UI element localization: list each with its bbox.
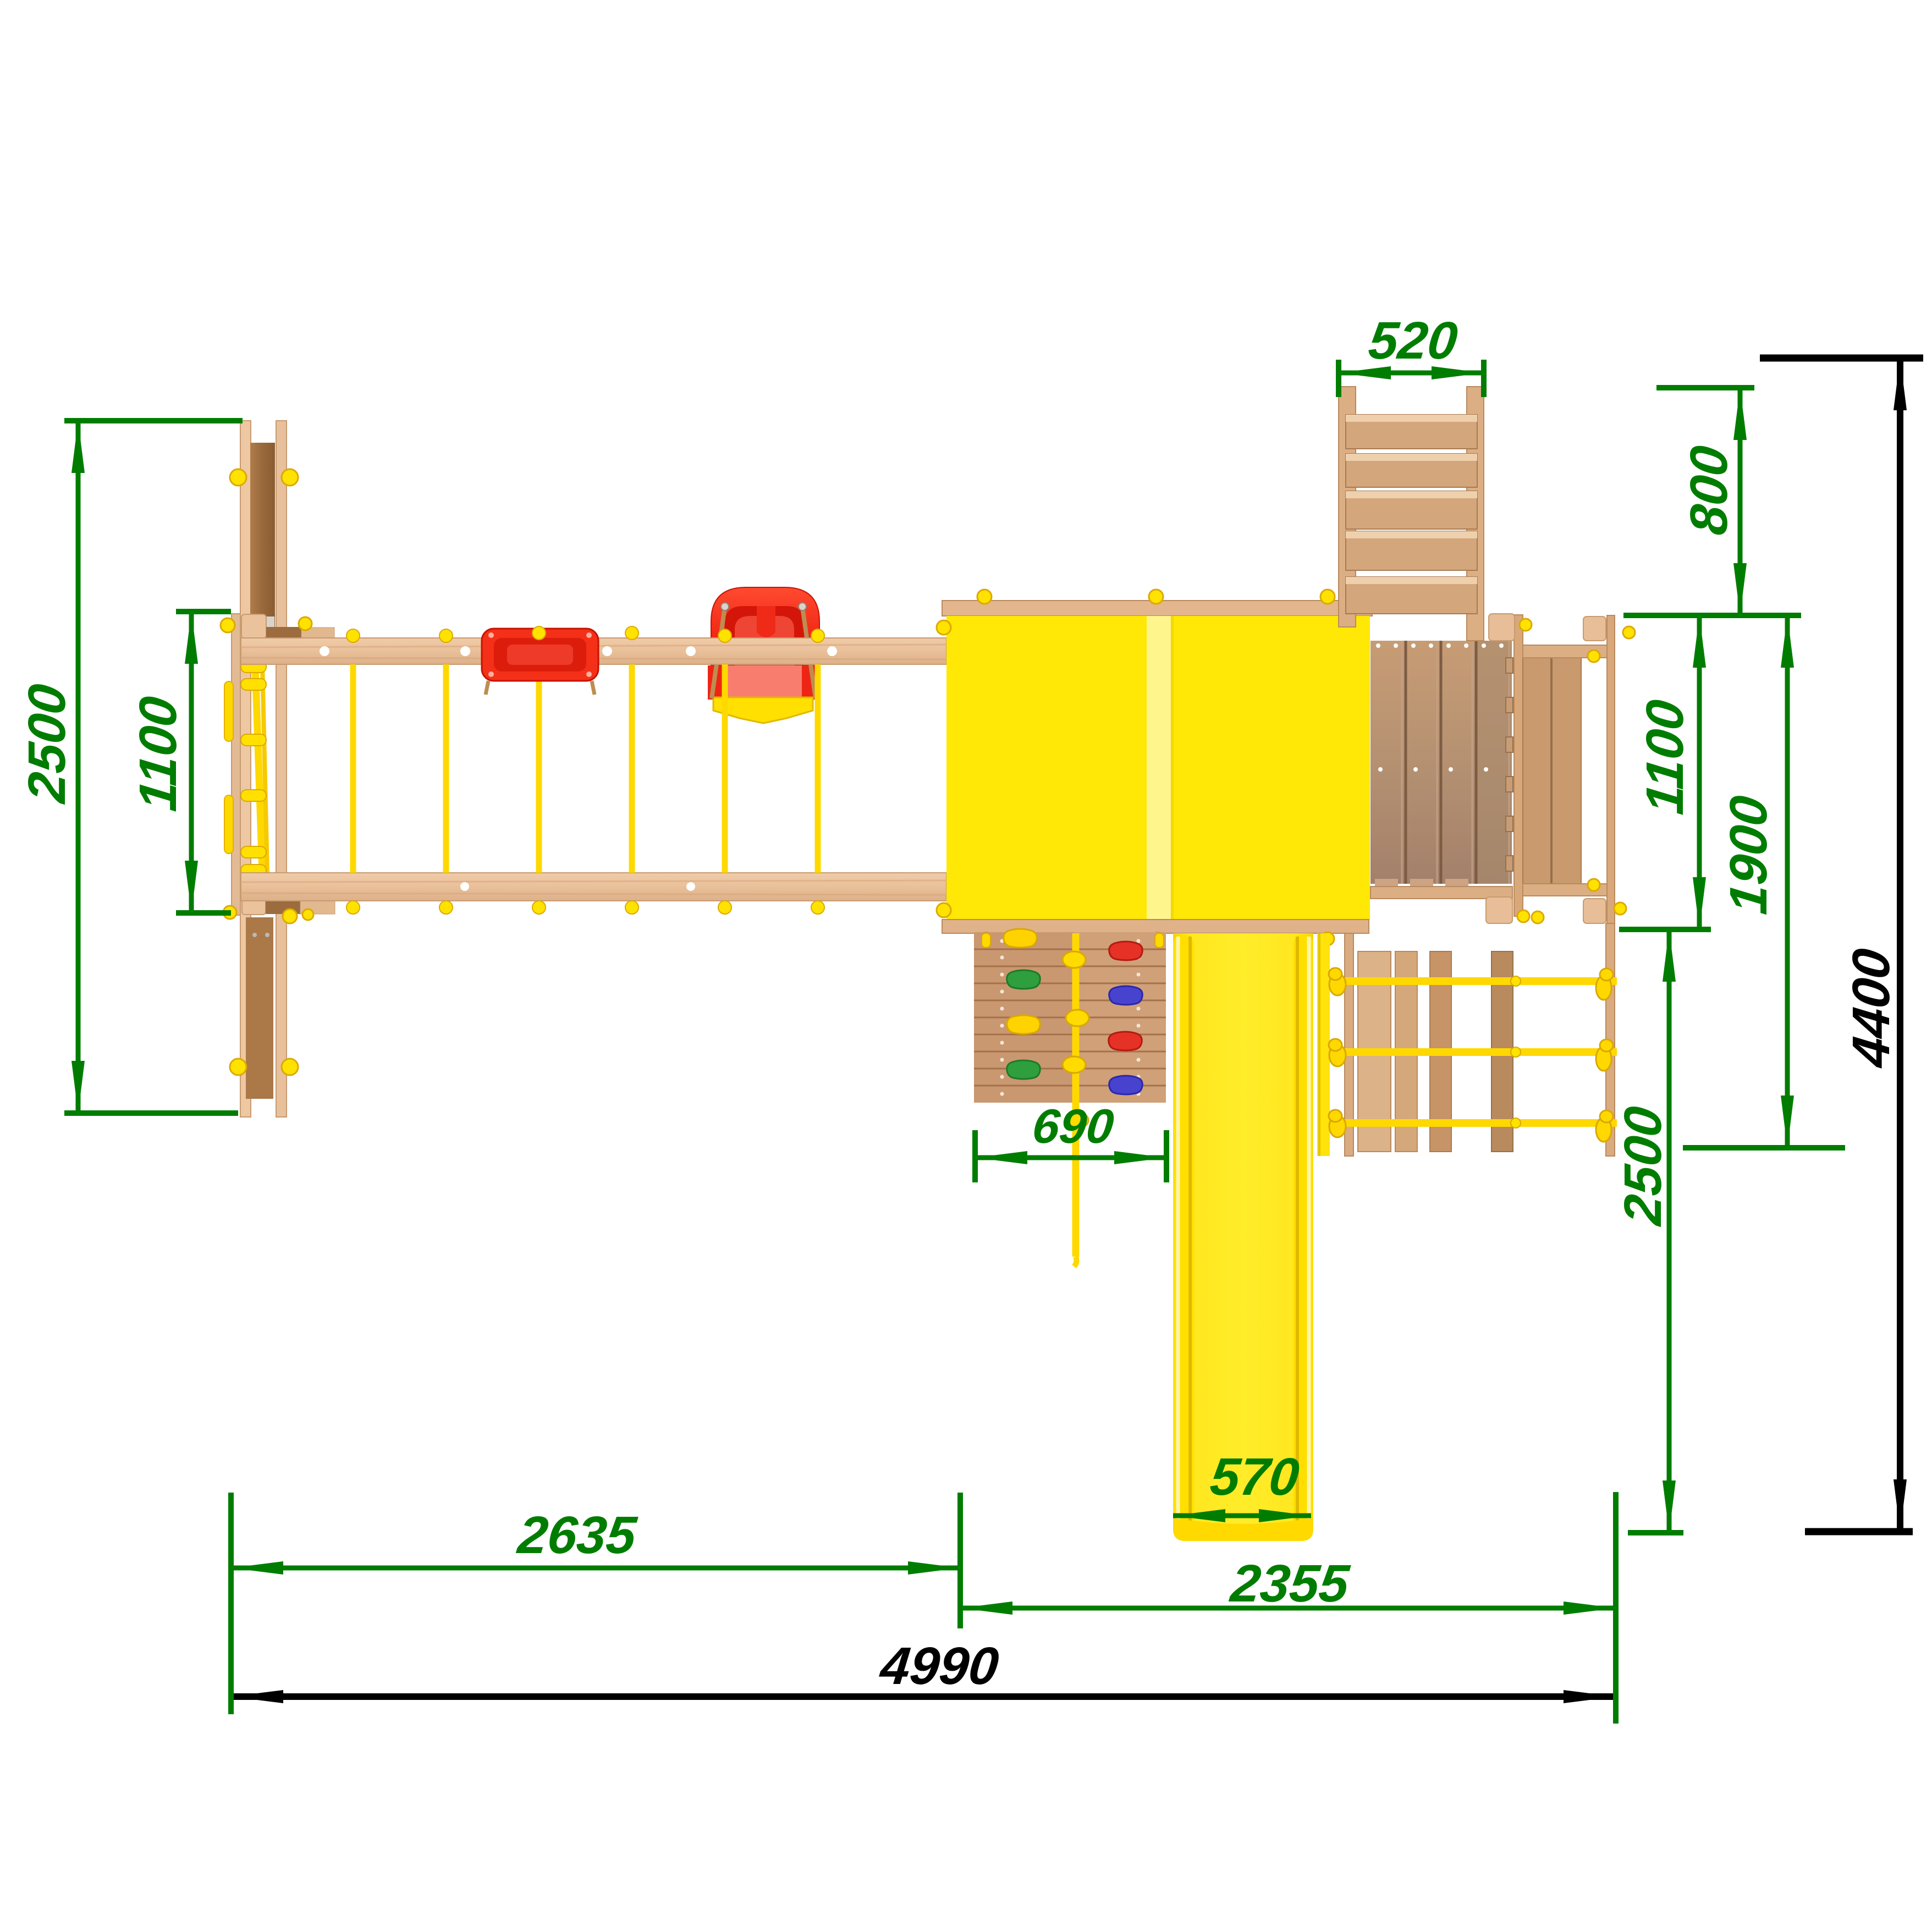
svg-text:1100: 1100 [129,694,188,814]
svg-text:4400: 4400 [1842,946,1901,1071]
svg-text:2355: 2355 [1227,1554,1352,1613]
svg-text:2500: 2500 [18,681,76,806]
svg-text:570: 570 [1208,1447,1302,1506]
svg-text:690: 690 [1030,1099,1116,1153]
svg-text:800: 800 [1680,443,1738,537]
svg-text:2635: 2635 [514,1506,640,1565]
svg-text:1100: 1100 [1636,697,1694,817]
svg-text:2500: 2500 [1614,1104,1672,1229]
svg-text:520: 520 [1366,311,1460,370]
svg-text:1900: 1900 [1719,793,1778,917]
svg-text:4990: 4990 [877,1637,1001,1696]
